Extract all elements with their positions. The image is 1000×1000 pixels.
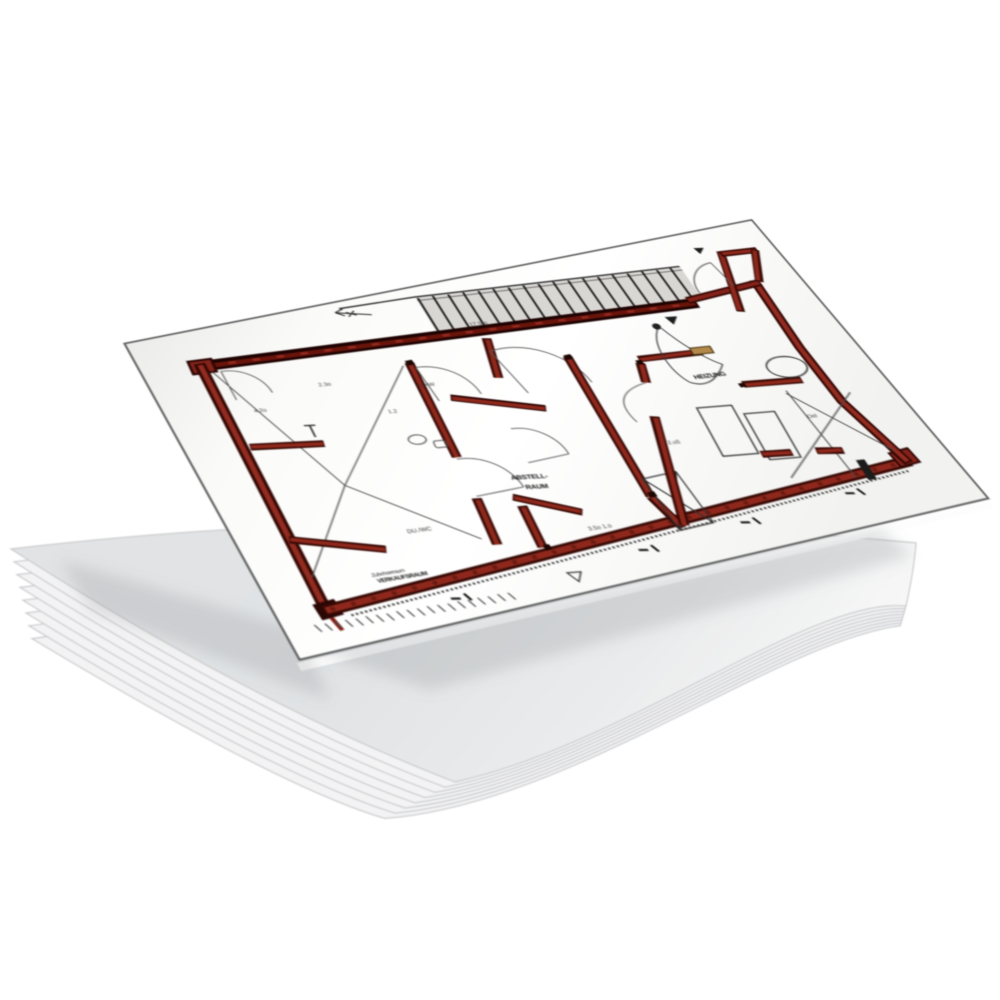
svg-text:4.2o: 4.2o: [253, 408, 268, 414]
svg-text:RAUM: RAUM: [524, 483, 549, 491]
svg-text:2.3o: 2.3o: [318, 382, 333, 388]
